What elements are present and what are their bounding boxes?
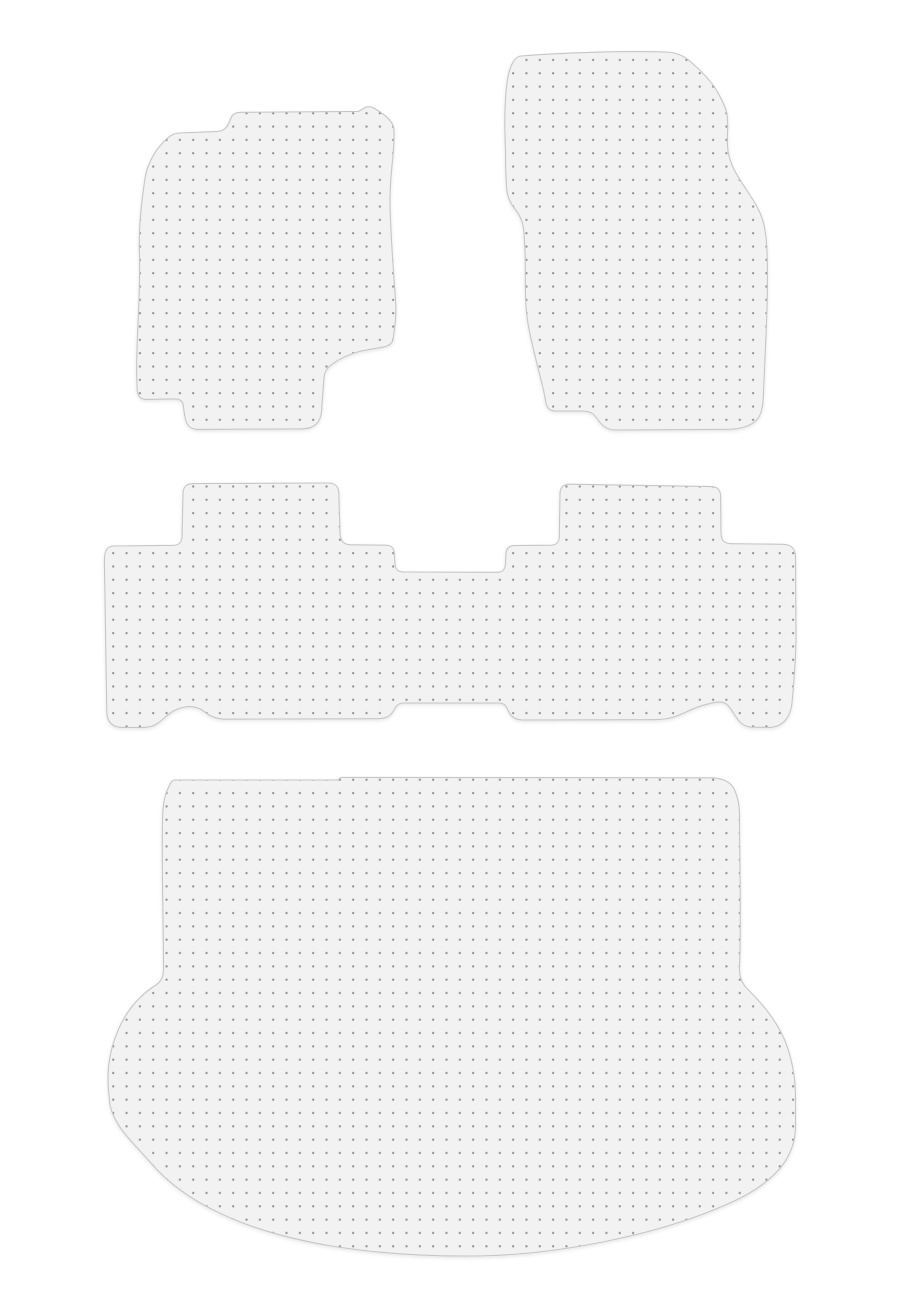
product-image-car-mat-set (0, 0, 900, 1310)
cargo-area-mat (108, 777, 795, 1256)
mat-set-illustration (0, 0, 900, 1310)
